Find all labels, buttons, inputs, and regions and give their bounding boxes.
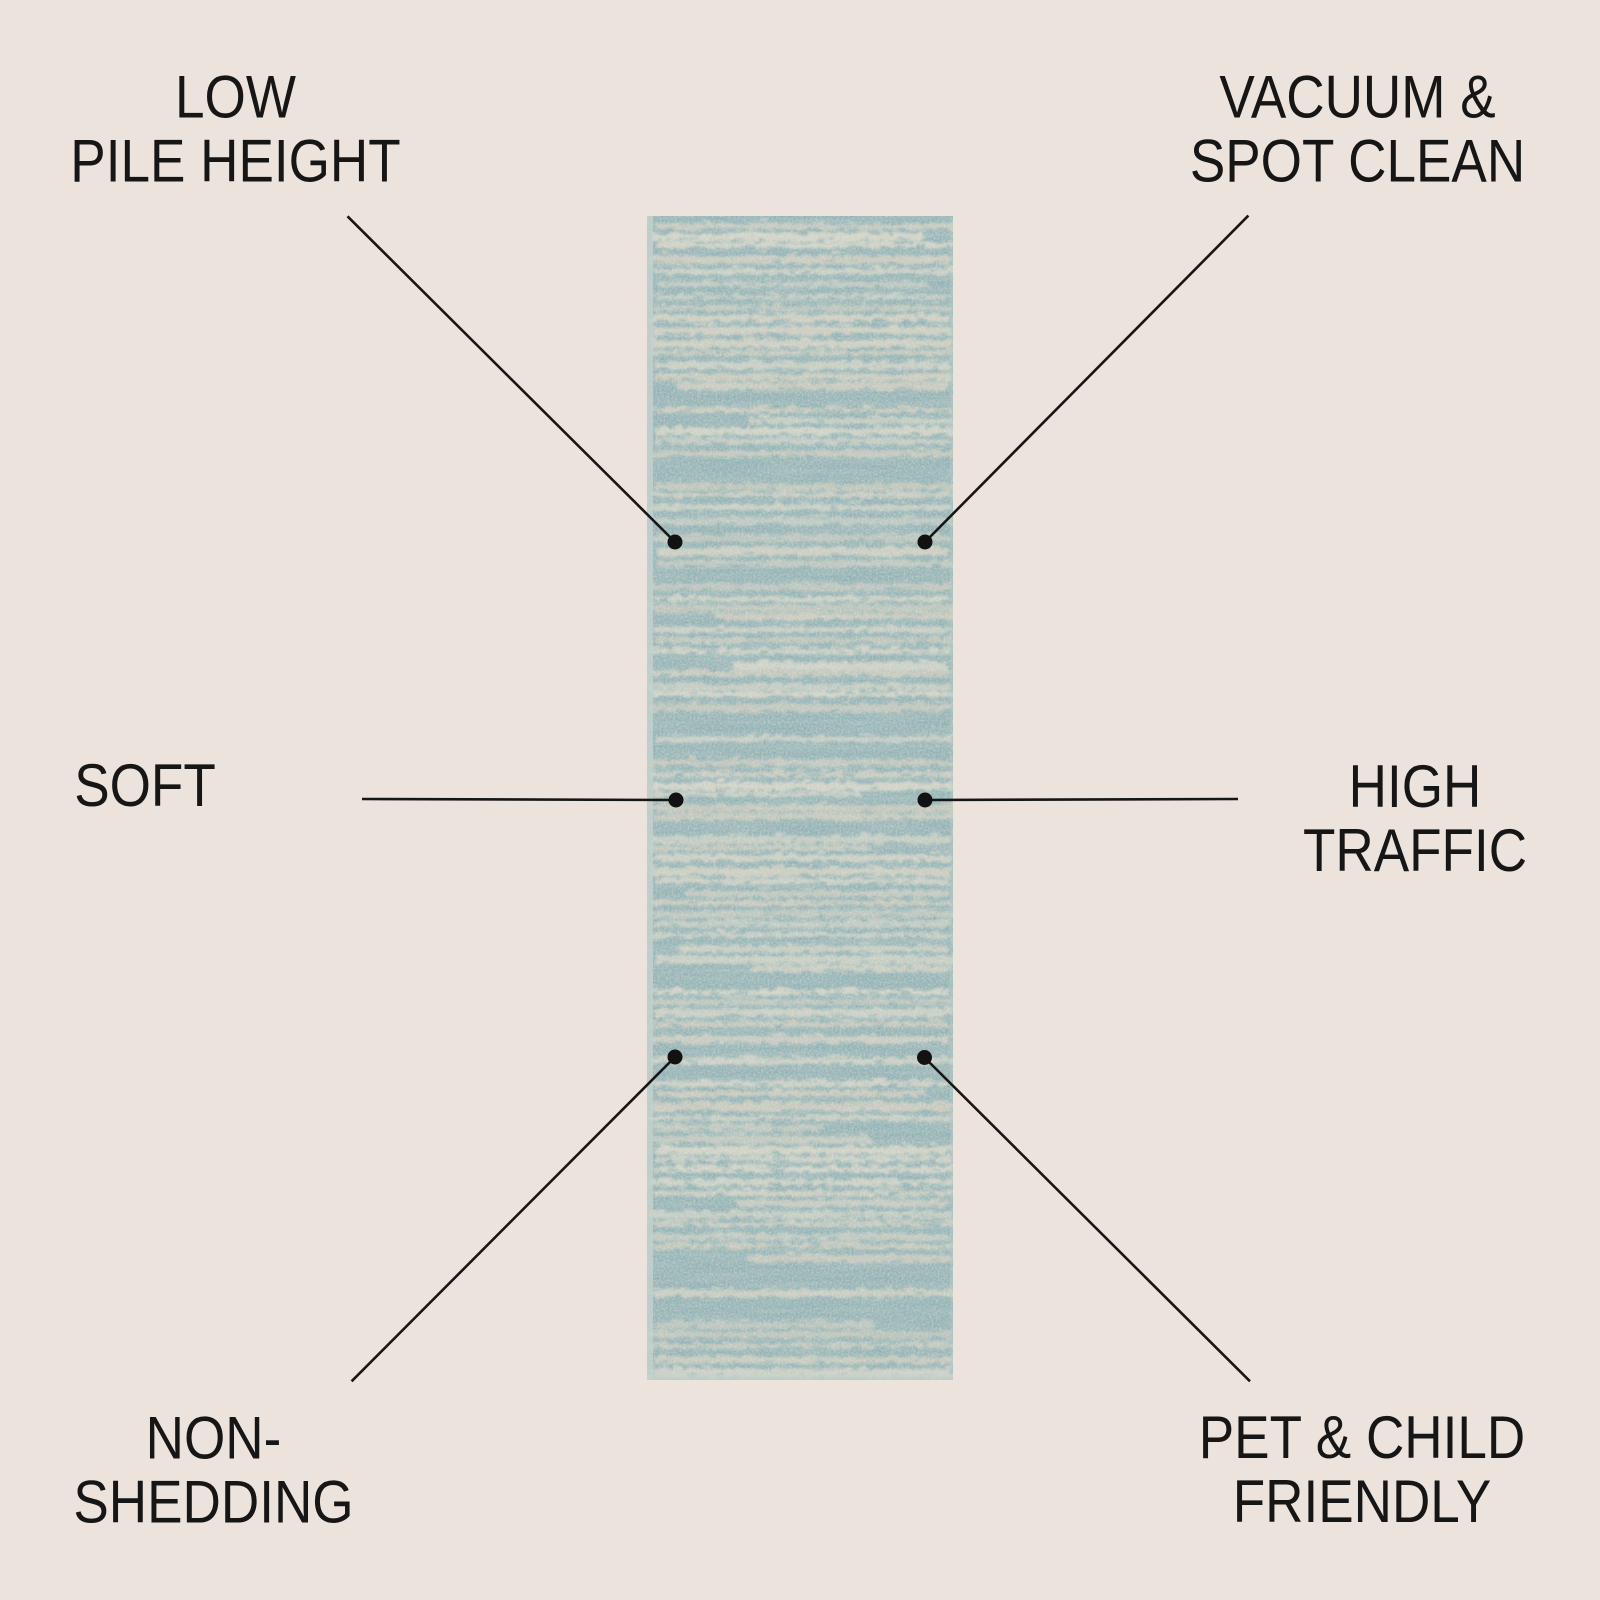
svg-text:PET & CHILD: PET & CHILD — [1199, 1405, 1525, 1472]
svg-text:TRAFFIC: TRAFFIC — [1303, 818, 1527, 885]
svg-text:SPOT CLEAN: SPOT CLEAN — [1190, 128, 1525, 195]
svg-text:NON-: NON- — [146, 1405, 282, 1472]
svg-text:FRIENDLY: FRIENDLY — [1233, 1469, 1492, 1536]
svg-text:PILE HEIGHT: PILE HEIGHT — [70, 128, 400, 195]
svg-text:SOFT: SOFT — [74, 753, 216, 820]
svg-text:VACUUM &: VACUUM & — [1219, 64, 1495, 131]
svg-text:LOW: LOW — [175, 64, 296, 131]
svg-text:SHEDDING: SHEDDING — [73, 1469, 353, 1536]
svg-text:HIGH: HIGH — [1349, 754, 1482, 821]
